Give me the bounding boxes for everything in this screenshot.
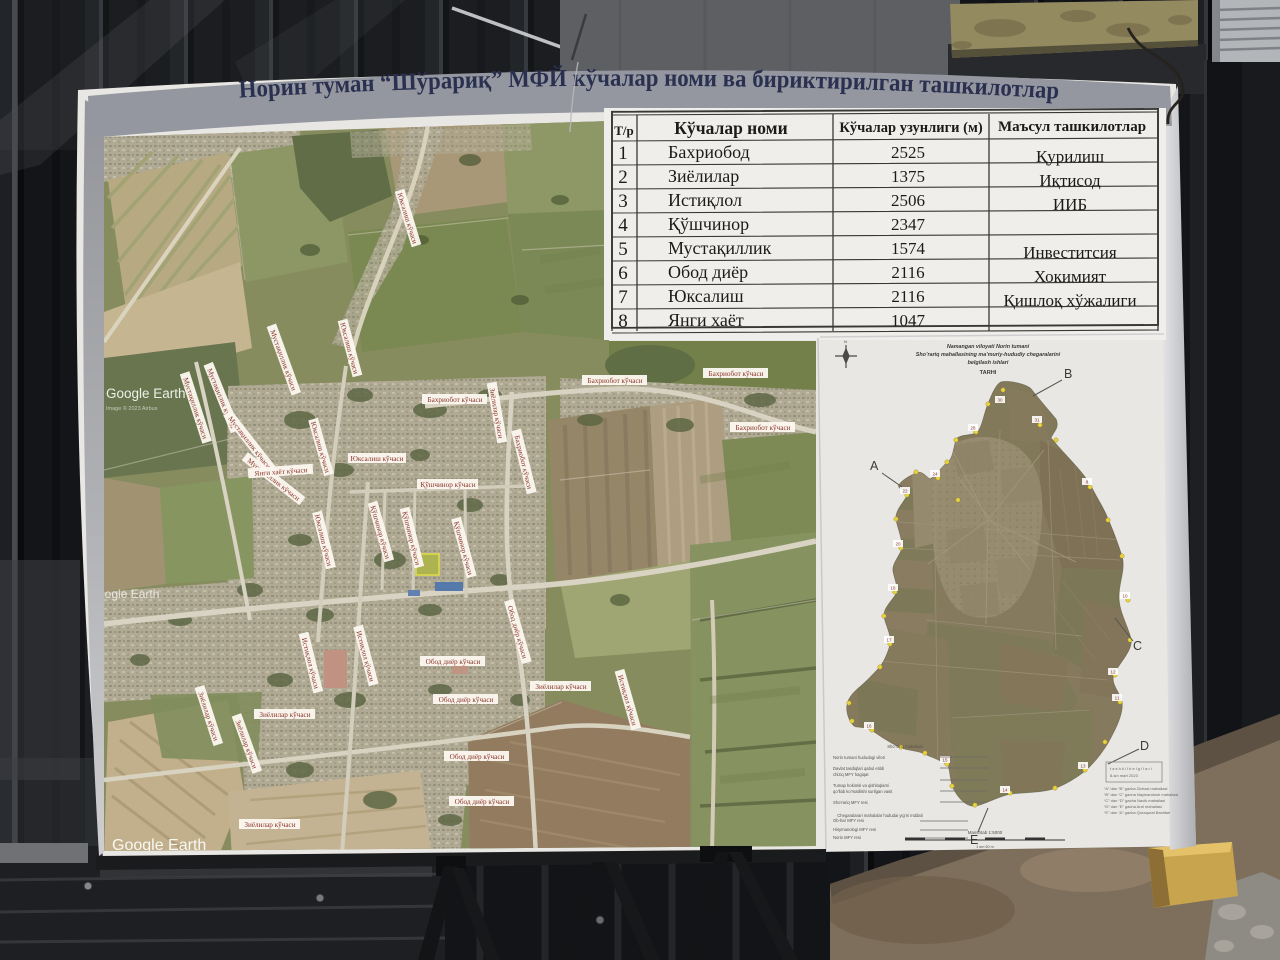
svg-text:Бахриобот кўчаси: Бахриобот кўчаси [588, 377, 643, 385]
svg-text:20: 20 [895, 542, 901, 547]
svg-text:14: 14 [1002, 788, 1008, 793]
svg-text:C: C [1133, 639, 1142, 653]
svg-text:Hisymanologi MFY resi: Hisymanologi MFY resi [833, 827, 876, 832]
svg-text:28: 28 [970, 426, 976, 431]
svg-text:“D” dan “E” gacha Aral mahall: “D” dan “E” gacha Aral mahallasi [1104, 804, 1162, 809]
svg-text:“B” dan “C” gacha Nayinandosh: “B” dan “C” gacha Nayinandosh mahallasi [1104, 792, 1178, 797]
svg-text:2116: 2116 [891, 263, 924, 282]
svg-text:Зиёлилар: Зиёлилар [668, 166, 739, 186]
svg-text:Обод диёр: Обод диёр [668, 262, 748, 282]
svg-text:Қишлоқ хўжалиги: Қишлоқ хўжалиги [1003, 291, 1136, 310]
svg-text:6: 6 [618, 263, 628, 284]
svg-text:Қурилиш: Қурилиш [1036, 147, 1104, 166]
svg-text:Қўшчинор кўчаси: Қўшчинор кўчаси [420, 481, 475, 489]
svg-text:Қўшчинор: Қўшчинор [668, 214, 749, 234]
svg-text:Т/р: Т/р [614, 123, 634, 138]
svg-text:“C” dan “D” gacha Navik mahal: “C” dan “D” gacha Navik mahallasi [1104, 798, 1165, 803]
svg-text:ИИБ: ИИБ [1053, 195, 1087, 214]
svg-text:Image © 2023 Airbus: Image © 2023 Airbus [106, 405, 158, 412]
svg-text:11: 11 [1115, 696, 1120, 701]
svg-text:Истиқлол: Истиқлол [668, 190, 742, 210]
svg-text:qo’llab ko’rsatilishi surilgan: qo’llab ko’rsatilishi surilgan vasit [833, 789, 893, 794]
svg-text:B: B [1064, 367, 1072, 381]
svg-text:N: N [844, 339, 847, 344]
svg-text:2116: 2116 [891, 287, 924, 306]
svg-text:Зиёлилар кўчаси: Зиёлилар кўчаси [259, 711, 310, 719]
svg-text:1375: 1375 [891, 167, 925, 186]
svg-text:oogle Earth: oogle Earth [98, 587, 159, 601]
svg-text:1574: 1574 [891, 239, 926, 258]
svg-text:Namangan viloyati Norin tumani: Namangan viloyati Norin tumani [947, 344, 1030, 350]
svg-text:“A” dan “B” gacha Zichasi maha: “A” dan “B” gacha Zichasi mahallasi [1104, 786, 1167, 791]
svg-text:24: 24 [932, 472, 938, 477]
svg-text:Иқтисод: Иқтисод [1039, 171, 1101, 190]
svg-text:Masshtab 1:5000: Masshtab 1:5000 [968, 830, 1003, 835]
svg-text:t a s h k i l b e l g i l a: t a s h k i l b e l g i l a r i [1110, 766, 1152, 771]
svg-text:5: 5 [618, 239, 628, 260]
svg-text:8-sin mart 2023: 8-sin mart 2023 [1110, 773, 1139, 778]
svg-text:Norin tumani hududagi viloti: Norin tumani hududagi viloti [833, 755, 885, 760]
svg-text:Бахриобот кўчаси: Бахриобот кўчаси [428, 396, 483, 404]
svg-text:A: A [870, 459, 879, 473]
svg-text:Tumap hokimiti va qishloqlarni: Tumap hokimiti va qishloqlarni [833, 783, 889, 788]
svg-text:Инвеститсия: Инвеститсия [1023, 243, 1117, 262]
svg-text:Хокимият: Хокимият [1034, 267, 1107, 286]
svg-text:Обод диёр кўчаси: Обод диёр кўчаси [439, 696, 494, 704]
svg-text:Кўчалар узунлиги (м): Кўчалар узунлиги (м) [839, 120, 983, 136]
svg-text:17: 17 [886, 638, 892, 643]
svg-text:Davlat tasdiqlari qabul etildi: Davlat tasdiqlari qabul etildi [833, 766, 884, 771]
svg-text:Бахриобод: Бахриобод [668, 142, 750, 162]
svg-text:Обод диёр кўчаси: Обод диёр кўчаси [455, 798, 510, 806]
svg-text:4: 4 [618, 215, 628, 236]
svg-text:2506: 2506 [891, 191, 925, 210]
svg-text:Мустақиллик: Мустақиллик [668, 238, 772, 258]
svg-text:Бахриобот кўчаси: Бахриобот кўчаси [736, 424, 791, 432]
svg-text:Ob-har MFY resi: Ob-har MFY resi [833, 818, 864, 823]
svg-text:10: 10 [1122, 594, 1128, 599]
svg-text:Обод диёр кўчаси: Обод диёр кўчаси [426, 658, 481, 666]
svg-text:2347: 2347 [891, 215, 926, 234]
svg-text:Sho’rariq mahallasi: Sho’rariq mahallasi [887, 744, 923, 749]
svg-text:Кўчалар номи: Кўчалар номи [674, 118, 787, 138]
svg-text:chiziq MFY hagiqat: chiziq MFY hagiqat [833, 772, 869, 777]
svg-text:22: 22 [902, 489, 908, 494]
svg-text:3: 3 [618, 191, 628, 212]
svg-text:Sho’rariq MFY resi: Sho’rariq MFY resi [833, 800, 868, 805]
svg-text:31: 31 [1034, 418, 1040, 423]
svg-text:1047: 1047 [891, 311, 926, 330]
svg-text:7: 7 [618, 287, 628, 308]
svg-text:30: 30 [997, 398, 1003, 403]
svg-text:belgilash ishlari: belgilash ishlari [968, 360, 1009, 366]
svg-text:Зиёлилар кўчаси: Зиёлилар кўчаси [244, 821, 295, 829]
svg-text:TARHI: TARHI [980, 370, 997, 376]
svg-text:Юксалиш кўчаси: Юксалиш кўчаси [351, 455, 404, 463]
svg-text:1: 1 [618, 143, 628, 164]
svg-text:12: 12 [1110, 670, 1116, 675]
svg-text:Маъсул ташкилотлар: Маъсул ташкилотлар [998, 119, 1146, 135]
svg-text:Зиёлилар кўчаси: Зиёлилар кўчаси [535, 683, 586, 691]
svg-text:15: 15 [942, 758, 948, 763]
svg-text:Google Earth: Google Earth [106, 386, 186, 401]
svg-text:Norin MFY resi: Norin MFY resi [833, 835, 861, 840]
svg-text:2: 2 [618, 167, 628, 188]
svg-text:13: 13 [1080, 764, 1086, 769]
svg-text:Обод диёр кўчаси: Обод диёр кўчаси [450, 753, 505, 761]
svg-text:“E” dan “A” gacha Qoraqurat Ba: “E” dan “A” gacha Qoraqurat Baxtilari [1104, 810, 1170, 815]
svg-text:Юксалиш: Юксалиш [668, 286, 744, 306]
svg-text:Sho’rariq mahallasining ma’mur: Sho’rariq mahallasining ma’muriy-hududiy… [916, 352, 1061, 358]
svg-text:16: 16 [866, 724, 872, 729]
svg-text:2525: 2525 [891, 143, 925, 162]
svg-text:Янги хаёт: Янги хаёт [668, 310, 744, 330]
svg-text:8: 8 [618, 311, 628, 332]
svg-text:1 sm 50 m: 1 sm 50 m [976, 845, 994, 849]
svg-text:D: D [1140, 739, 1149, 753]
svg-text:18: 18 [890, 586, 896, 591]
svg-text:Бахриобот кўчаси: Бахриобот кўчаси [709, 370, 764, 378]
